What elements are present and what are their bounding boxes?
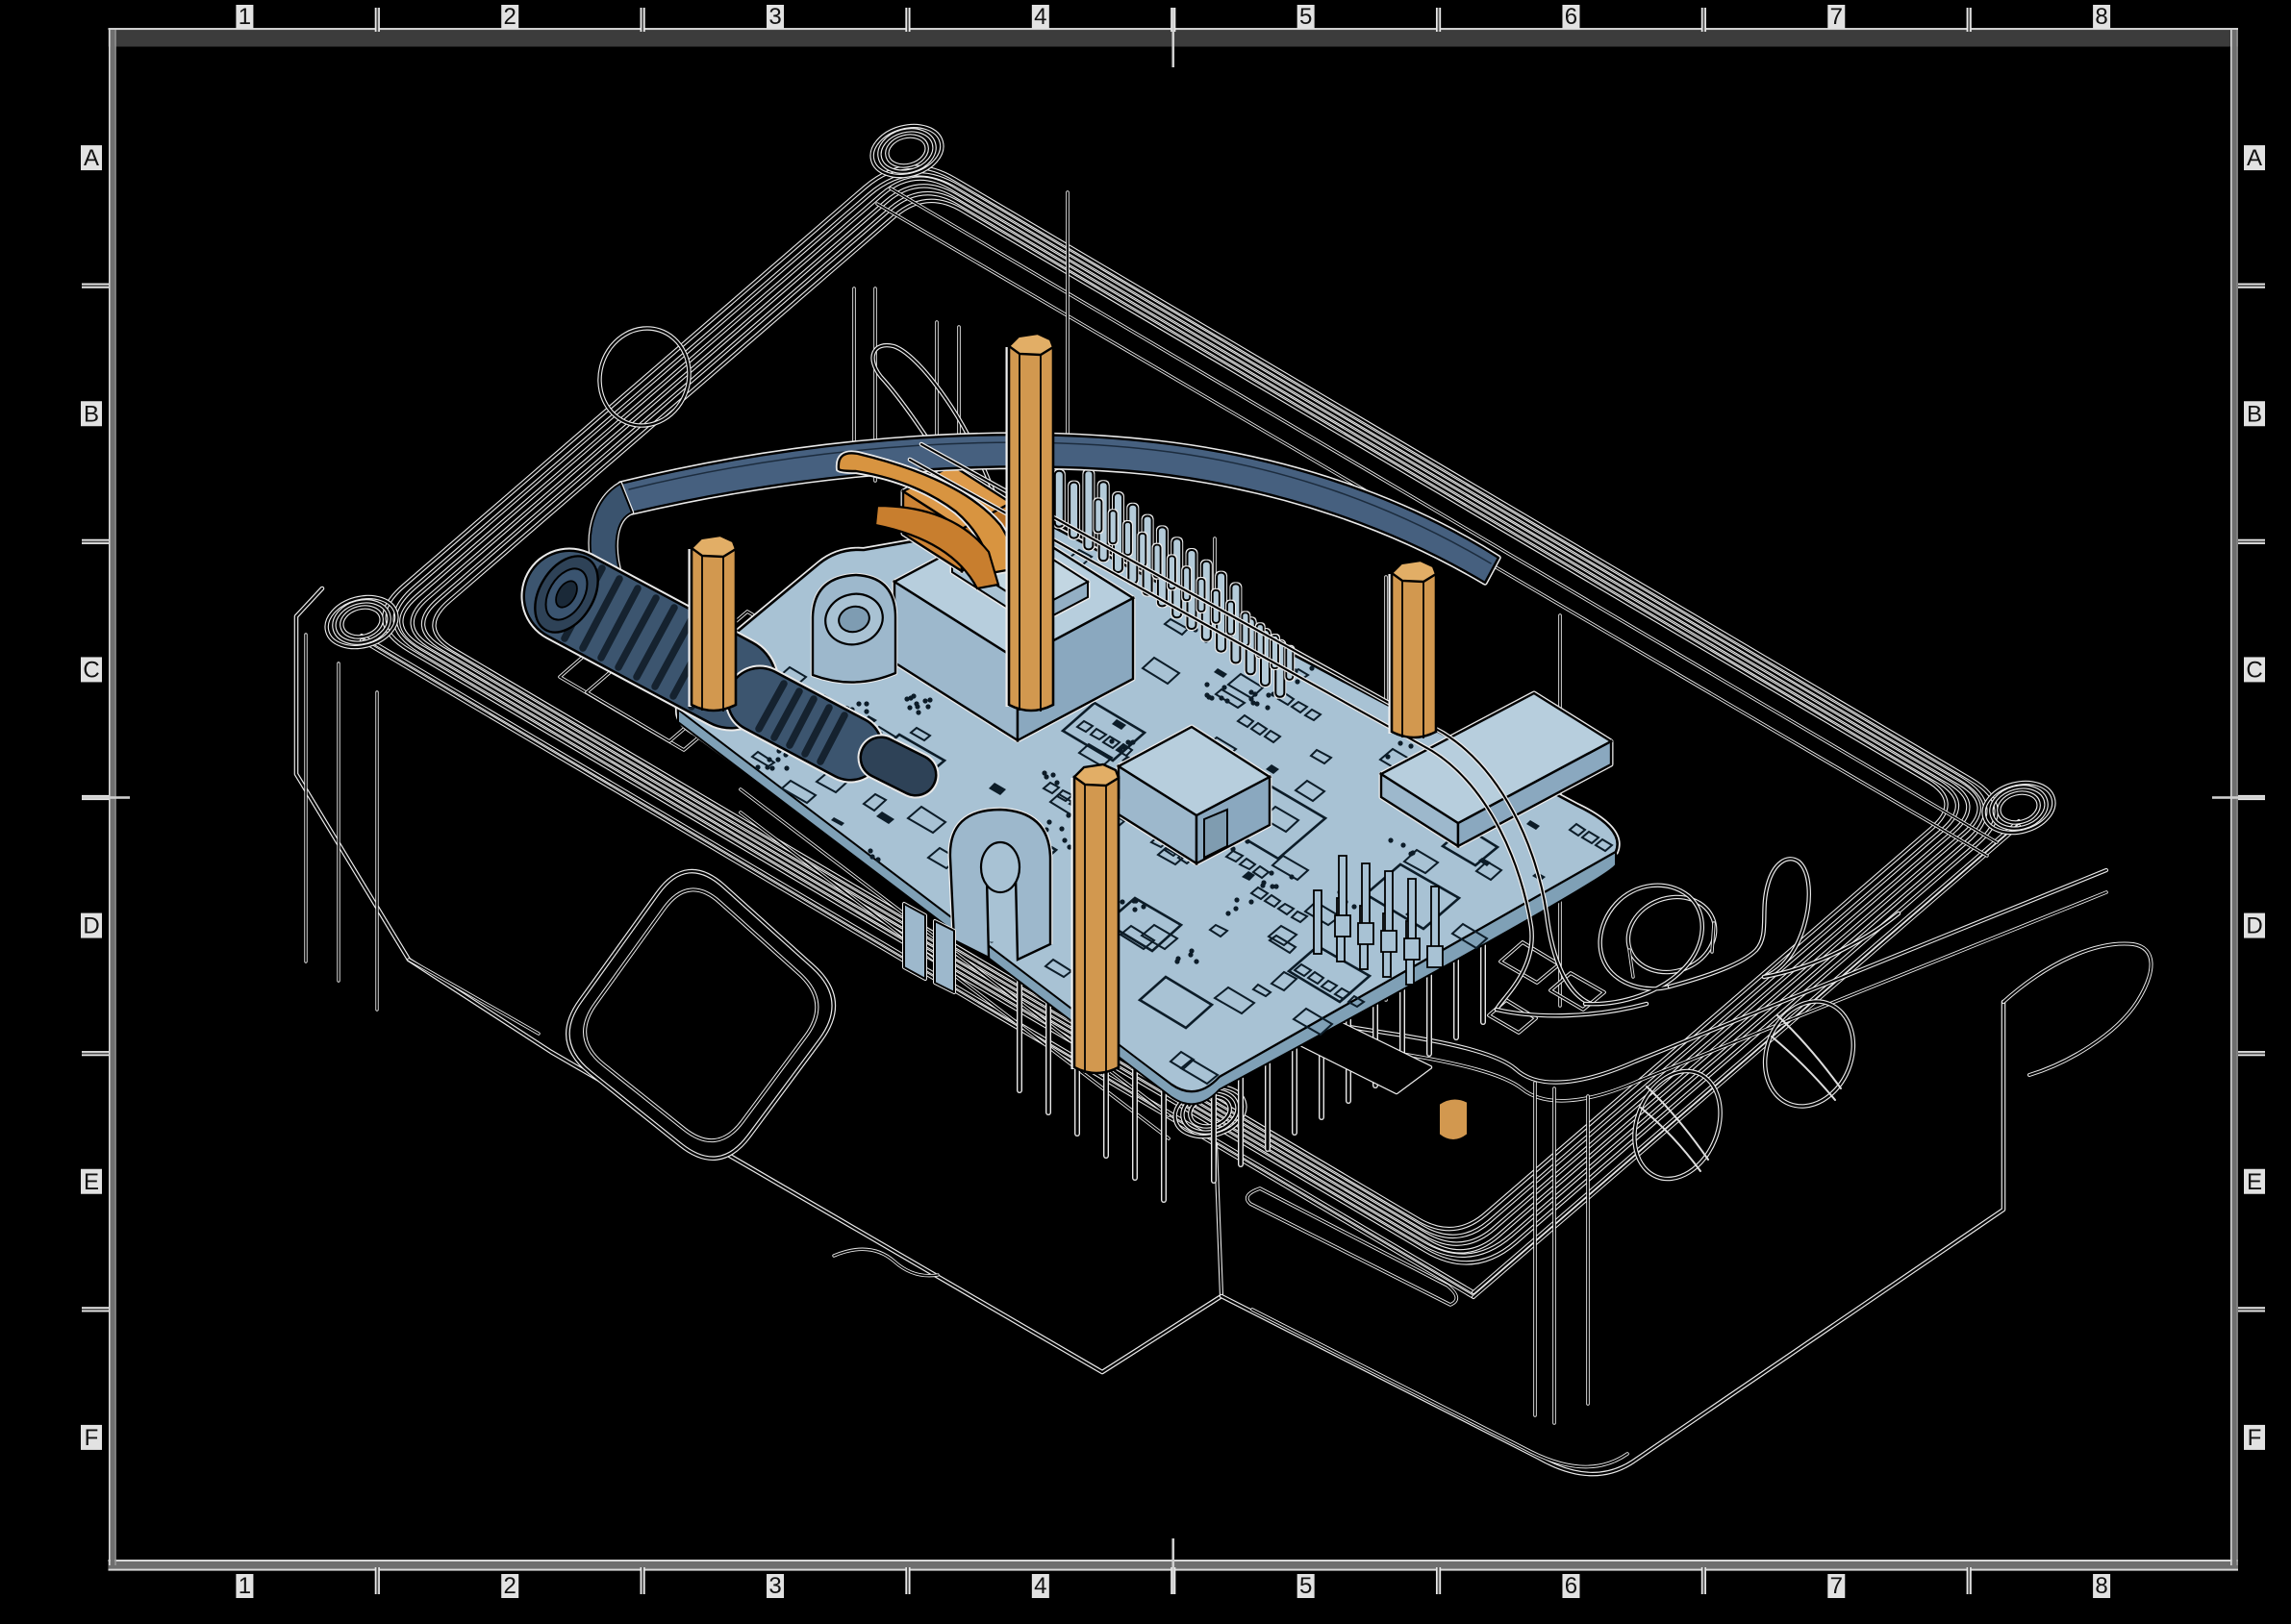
svg-text:B: B [2247,401,2262,427]
svg-text:5: 5 [1299,4,1312,30]
svg-text:B: B [84,401,99,427]
svg-text:5: 5 [1299,1573,1312,1599]
svg-text:7: 7 [1830,1573,1843,1599]
svg-text:4: 4 [1034,4,1046,30]
svg-text:2: 2 [504,1573,516,1599]
svg-text:F: F [85,1425,99,1451]
svg-text:6: 6 [1565,1573,1577,1599]
svg-text:E: E [2247,1169,2262,1195]
svg-text:E: E [84,1169,99,1195]
svg-text:1: 1 [239,4,251,30]
svg-text:3: 3 [768,1573,781,1599]
svg-text:8: 8 [2095,4,2107,30]
svg-text:1: 1 [239,1573,251,1599]
svg-text:F: F [2248,1425,2262,1451]
svg-text:D: D [83,913,99,939]
svg-text:A: A [84,145,99,171]
svg-text:3: 3 [768,4,781,30]
svg-text:D: D [2246,913,2262,939]
svg-text:C: C [2246,657,2262,683]
svg-text:4: 4 [1034,1573,1046,1599]
svg-text:2: 2 [504,4,516,30]
svg-text:C: C [83,657,99,683]
svg-text:8: 8 [2095,1573,2107,1599]
svg-text:7: 7 [1830,4,1843,30]
svg-text:A: A [2247,145,2262,171]
svg-text:6: 6 [1565,4,1577,30]
